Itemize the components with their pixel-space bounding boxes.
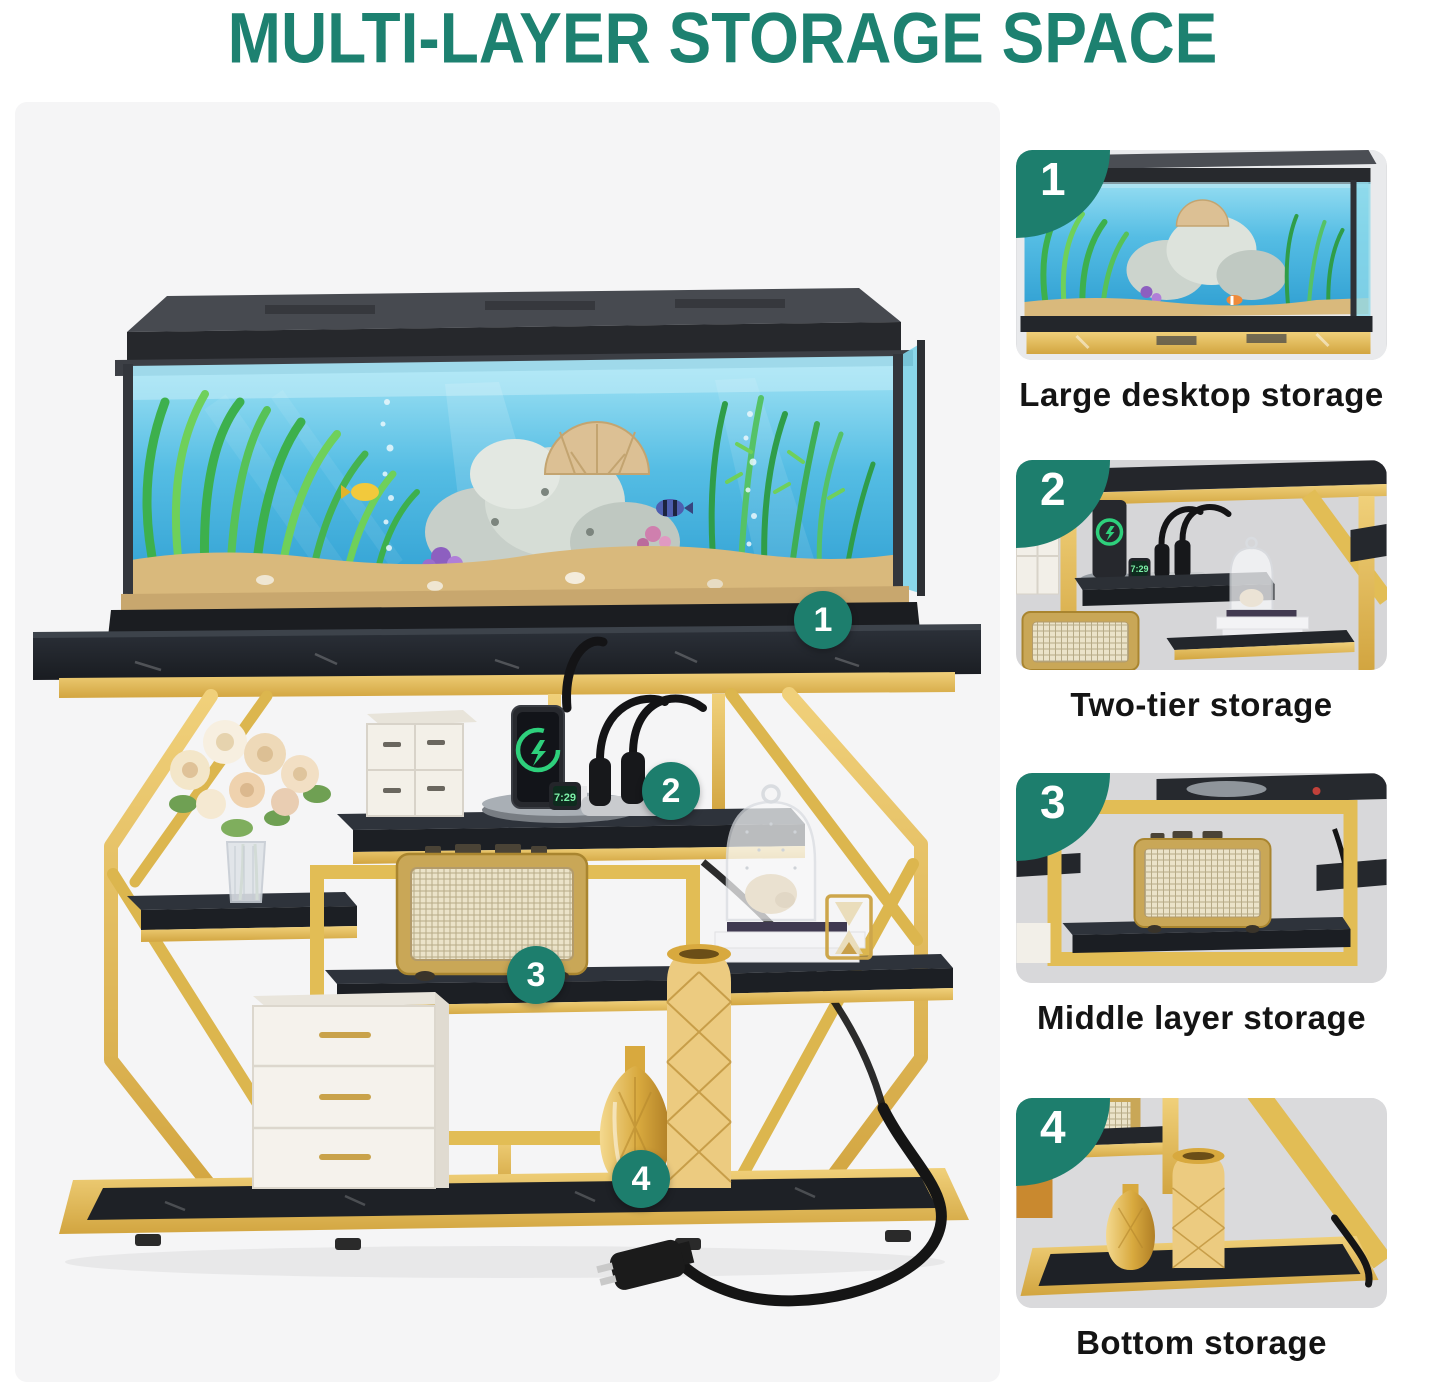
- callout-4: 4: [612, 1150, 670, 1208]
- main-product-image: 7:29: [15, 102, 1000, 1382]
- callout-2: 2: [642, 762, 700, 820]
- thumbnail-caption-2: Two-tier storage: [1016, 686, 1387, 724]
- thumbnail-bottom-storage: 4 Bottom storage: [1016, 1098, 1387, 1362]
- callout-2-number: 2: [662, 772, 681, 811]
- callout-1: 1: [794, 591, 852, 649]
- badge-3-number: 3: [1040, 776, 1066, 828]
- thumbnail-caption-3: Middle layer storage: [1016, 999, 1387, 1037]
- thumbnail-large-desktop-storage: 1 Large desktop storage: [1016, 150, 1387, 414]
- flower-vase: [169, 720, 331, 902]
- callout-3-number: 3: [527, 956, 546, 995]
- product-infographic: MULTI-LAYER STORAGE SPACE: [0, 0, 1445, 1390]
- thumbnail-two-tier-storage: 7:29 2 Two-tier st: [1016, 460, 1387, 724]
- thumbnail-middle-layer-storage: 3 Middle layer storage: [1016, 773, 1387, 1037]
- badge-1-number: 1: [1040, 153, 1066, 205]
- callout-1-number: 1: [814, 601, 833, 640]
- thumbnail-image-3: 3: [1016, 773, 1387, 983]
- thumbnail-image-1: 1: [1016, 150, 1387, 360]
- thumbnail-image-2: 7:29 2: [1016, 460, 1387, 670]
- page-title: MULTI-LAYER STORAGE SPACE: [0, 2, 1445, 74]
- main-scene-illustration: 7:29: [15, 102, 1000, 1382]
- thumbnail-caption-1: Large desktop storage: [1016, 376, 1387, 414]
- drawer-cabinet-large: [253, 992, 449, 1188]
- thumbnail-image-4: 4: [1016, 1098, 1387, 1308]
- svg-text:7:29: 7:29: [554, 792, 576, 804]
- badge-2-number: 2: [1040, 463, 1066, 515]
- drawer-cabinet-small: [367, 710, 477, 816]
- callout-3: 3: [507, 946, 565, 1004]
- badge-4-number: 4: [1040, 1101, 1066, 1153]
- svg-text:7:29: 7:29: [1130, 564, 1148, 574]
- callout-4-number: 4: [632, 1160, 651, 1199]
- aquarium-illustration: [107, 288, 925, 646]
- bottom-platform: [59, 1168, 969, 1250]
- thumbnail-caption-4: Bottom storage: [1016, 1324, 1387, 1362]
